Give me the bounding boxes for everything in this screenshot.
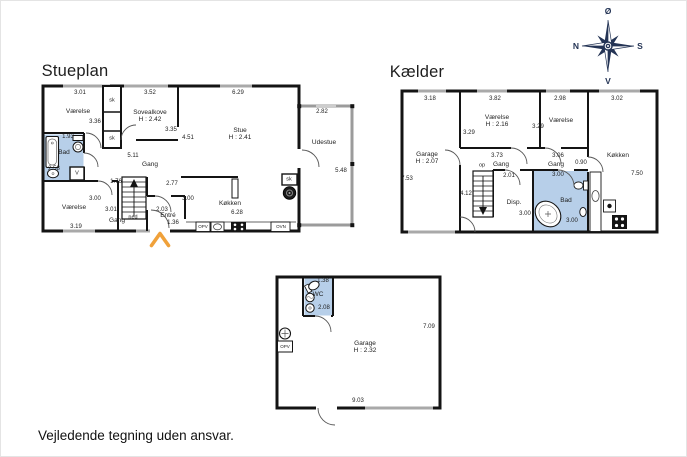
dim-label: 6.28 (231, 210, 243, 216)
dim-label: 1.36 (167, 220, 179, 226)
plan-title-stueplan: Stueplan (42, 63, 109, 80)
dim-label: 1.76 (110, 179, 122, 185)
room-label: Gang (493, 162, 509, 169)
room-label: Bad (560, 198, 572, 205)
labels-layer: Stueplan3.013.526.292.82VærelseskskSovea… (0, 0, 687, 457)
room-label: Køkken (219, 201, 241, 208)
dim-label: 3.00 (89, 196, 101, 202)
dim-label: 1.93 (62, 134, 74, 140)
room-label: H : 2.07 (416, 159, 439, 166)
dim-label: 2.08 (318, 305, 330, 311)
room-label: Gang (142, 162, 158, 169)
dim-label: 9.03 (352, 398, 364, 404)
dim-label: 4.12 (460, 191, 472, 197)
dim-label: 2.01 (503, 173, 515, 179)
dim-label: 2.98 (554, 96, 566, 102)
dim-label: 3.00 (519, 211, 531, 217)
dim-label: 3.52 (144, 90, 156, 96)
room-label: H : 2.42 (139, 117, 162, 124)
dim-label: 3.00 (566, 218, 578, 224)
room-label: Bad (58, 150, 70, 157)
dim-label: 5.48 (335, 168, 347, 174)
sm-label: V (75, 171, 79, 177)
dim-label: 6.29 (232, 90, 244, 96)
dim-label: 3.36 (89, 119, 101, 125)
sm-label: op (479, 163, 485, 169)
xs-label: OVN (276, 225, 286, 230)
plan-title-kaelder: Kælder (390, 64, 444, 81)
room-label: Gang (109, 218, 125, 225)
room-label: Disp. (507, 200, 522, 207)
sm-label: sk (109, 136, 115, 142)
dim-label: 3.82 (489, 96, 501, 102)
compass-west-label: V (605, 76, 611, 86)
dim-label: 3.29 (463, 130, 475, 136)
dim-label: 3.01 (74, 90, 86, 96)
dim-label: 3.00 (552, 172, 564, 178)
dim-label: 7.53 (401, 176, 413, 182)
dim-label: 3.00 (182, 196, 194, 202)
room-label: Entré (160, 213, 176, 220)
dim-label: 3.29 (532, 124, 544, 130)
dim-label: 3.73 (491, 153, 503, 159)
room-label: WC (313, 292, 324, 299)
dim-label: 3.01 (105, 207, 117, 213)
room-label: Værelse (62, 205, 86, 212)
sm-label: ned (128, 215, 137, 221)
room-label: Køkken (607, 153, 629, 160)
dim-label: 2.77 (166, 181, 178, 187)
dim-label: 2.58 (48, 166, 60, 172)
dim-label: 4.51 (182, 135, 194, 141)
dim-label: 7.50 (631, 171, 643, 177)
dim-label: 3.06 (552, 153, 564, 159)
dim-label: 1.38 (317, 278, 329, 284)
room-label: H : 2.16 (486, 122, 509, 129)
room-label: H : 2.32 (354, 348, 377, 355)
dim-label: 3.02 (611, 96, 623, 102)
dim-label: 2.82 (316, 109, 328, 115)
room-label: Gang (548, 162, 564, 169)
disclaimer-text: Vejledende tegning uden ansvar. (38, 428, 234, 443)
compass-south-label: S (637, 41, 643, 51)
xs-label: OPV (280, 345, 290, 350)
room-label: Værelse (66, 109, 90, 116)
dim-label: 3.35 (165, 127, 177, 133)
room-label: H : 2.41 (229, 135, 252, 142)
compass-north-label: N (573, 41, 579, 51)
dim-label: 0.90 (575, 160, 587, 166)
compass-east-label: Ø (605, 6, 612, 16)
dim-label: 5.11 (127, 153, 138, 159)
dim-label: 3.19 (70, 224, 82, 230)
dim-label: 7.09 (423, 324, 435, 330)
room-label: Værelse (549, 118, 573, 125)
sm-label: sk (286, 177, 292, 183)
room-label: Udestue (312, 140, 336, 147)
dim-label: 3.18 (424, 96, 436, 102)
sm-label: sk (109, 98, 115, 104)
xs-label: OPV (198, 225, 208, 230)
